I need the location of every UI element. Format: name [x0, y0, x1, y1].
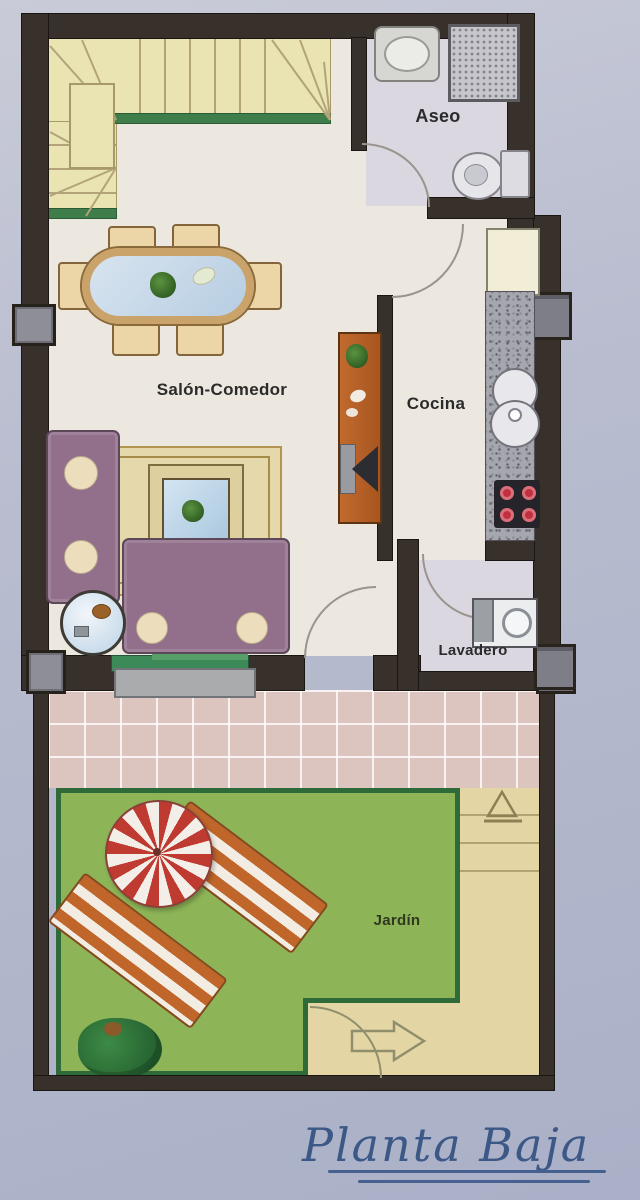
wall-lavadero-top	[486, 540, 534, 560]
wall-left	[22, 14, 48, 690]
stove-burner	[500, 508, 514, 522]
bush-detail	[104, 1022, 122, 1036]
stair-edge	[112, 114, 330, 123]
washing-machine-door	[502, 608, 532, 638]
garden-wall-left	[34, 690, 48, 1090]
stair-treads	[116, 38, 268, 116]
plan-title: Planta Baja	[302, 1118, 590, 1172]
lavadero-label: Lavadero	[420, 642, 526, 659]
sideboard-plant	[346, 344, 368, 368]
toilet-bowl-inner	[464, 164, 488, 186]
stove-burner	[500, 486, 514, 500]
tv	[352, 446, 378, 492]
wall-bottom	[248, 656, 304, 690]
stair-edge	[48, 209, 116, 218]
sink-drain	[508, 408, 522, 422]
sofa-cushion	[64, 540, 98, 574]
shower	[448, 24, 520, 102]
terrace-tiles	[48, 690, 540, 788]
side-table-item	[92, 604, 111, 619]
title-underline	[358, 1180, 590, 1183]
side-table-item	[74, 626, 89, 637]
sideboard-item	[346, 408, 358, 417]
side-table	[60, 590, 126, 656]
fridge	[486, 228, 540, 296]
title-underline	[328, 1170, 606, 1173]
terrace-step	[116, 670, 254, 696]
table-plant	[150, 272, 176, 298]
kitchen-window	[530, 292, 572, 340]
salon-comedor-label: Salón-Comedor	[132, 380, 312, 400]
stove-burner	[522, 508, 536, 522]
garden-wall-right	[540, 690, 554, 1090]
wall-lavadero-left	[398, 540, 418, 690]
floor-plan: Aseo Salón-Comedor Cocina Lavadero Jardí…	[0, 0, 640, 1200]
washbasin-bowl	[384, 36, 430, 72]
sofa-cushion	[136, 612, 168, 644]
jardin-label: Jardín	[352, 912, 442, 929]
sofa-cushion	[64, 456, 98, 490]
cocina-label: Cocina	[392, 394, 480, 414]
stove-burner	[522, 486, 536, 500]
coffee-table-plant	[182, 500, 204, 522]
wall-aseo-left	[352, 38, 366, 150]
pillar-window	[12, 304, 56, 346]
aseo-label: Aseo	[395, 106, 481, 127]
washing-machine-panel	[474, 600, 494, 642]
umbrella-pole	[153, 848, 161, 856]
garden-wall-bottom	[34, 1076, 554, 1090]
stair-treads	[48, 122, 116, 210]
sofa-cushion	[236, 612, 268, 644]
wall-aseo-bottom	[428, 198, 534, 218]
toilet-cistern	[500, 150, 530, 198]
path-bricks	[460, 788, 540, 872]
pillar	[26, 650, 66, 694]
lavadero-window	[534, 644, 576, 690]
